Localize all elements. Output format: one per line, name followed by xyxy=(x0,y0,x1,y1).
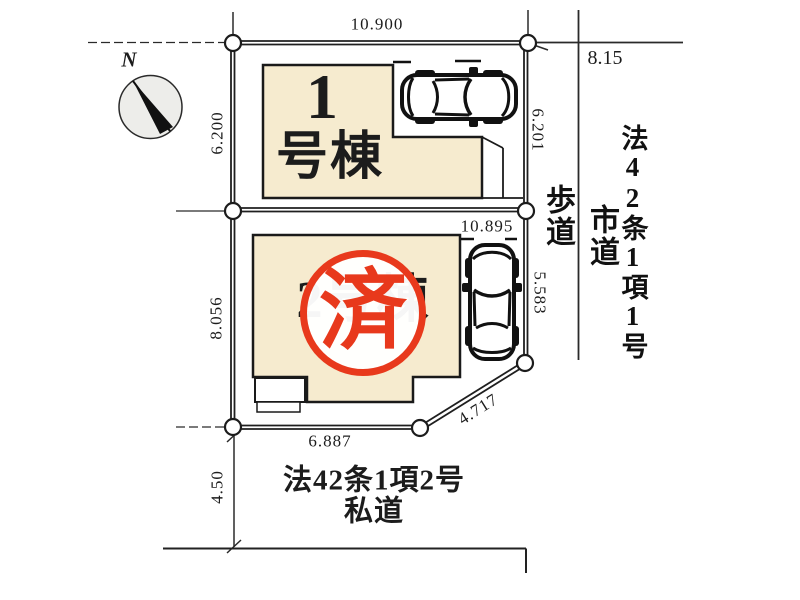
sold-stamp: 済 xyxy=(300,250,426,376)
dim-lot2-right: 5.583 xyxy=(532,271,549,314)
dim-road-width: 4.50 xyxy=(209,470,226,504)
building-1-name: 号棟 xyxy=(276,132,384,184)
building-1-number: 1 xyxy=(306,65,338,129)
sold-stamp-label: 済 xyxy=(319,269,407,357)
dim-lot1-left: 6.200 xyxy=(209,111,226,154)
compass-icon xyxy=(119,76,182,139)
south-road-line xyxy=(163,549,526,574)
east-road-type-label: 市道 xyxy=(586,204,616,268)
dim-lot1-right: 6.201 xyxy=(530,108,547,151)
dim-lot2-bottom: 6.887 xyxy=(308,433,351,450)
car-icon-lot2 xyxy=(462,245,522,359)
dim-east-road: 8.15 xyxy=(588,48,623,68)
compass-north-label: N xyxy=(121,50,136,71)
dim-lot1-top: 10.900 xyxy=(351,16,404,33)
south-road-type-label: 私道 xyxy=(344,498,404,527)
dim-lot2-left: 8.056 xyxy=(208,296,225,339)
dim-lot2-top: 10.895 xyxy=(461,218,514,235)
car-icon-lot1 xyxy=(402,67,516,127)
site-plan: N 1 号棟 2号棟 済 10.900 8.15 6.200 6.201 10.… xyxy=(0,0,800,600)
east-road-law-label: 法42条1項1号 xyxy=(619,124,646,360)
road-width-dimension xyxy=(227,429,241,553)
south-road-law-label: 法42条1項2号 xyxy=(283,467,465,496)
sidewalk-label: 歩道 xyxy=(542,184,572,248)
